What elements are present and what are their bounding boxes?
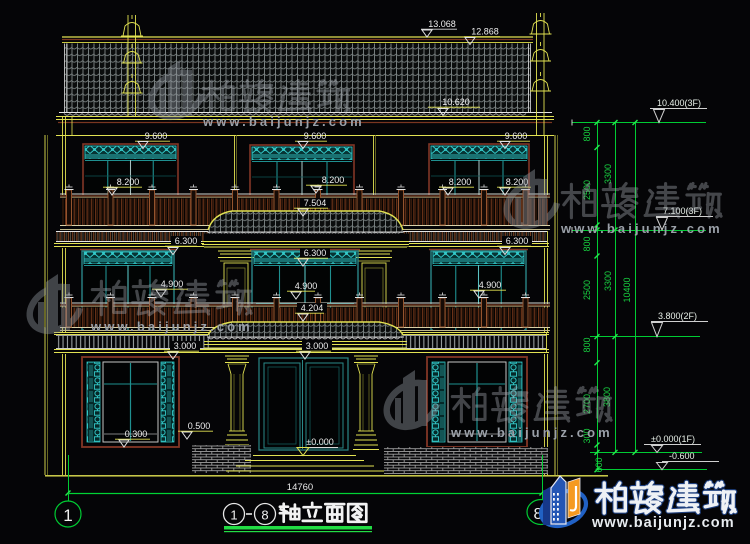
svg-text:600: 600 — [594, 457, 604, 472]
svg-text:8.200: 8.200 — [117, 177, 140, 187]
svg-text:800: 800 — [582, 236, 592, 251]
svg-text:2500: 2500 — [582, 280, 592, 300]
svg-text:www.baijunjz.com: www.baijunjz.com — [591, 515, 735, 531]
svg-text:9.600: 9.600 — [304, 131, 327, 141]
svg-text:10400: 10400 — [622, 277, 632, 302]
svg-text:9.600: 9.600 — [145, 131, 168, 141]
svg-text:1: 1 — [230, 508, 237, 523]
svg-text:4.900: 4.900 — [479, 280, 502, 290]
svg-text:800: 800 — [582, 126, 592, 141]
svg-text:3300: 3300 — [603, 164, 613, 184]
svg-text:1: 1 — [63, 506, 72, 525]
svg-text:8.200: 8.200 — [449, 177, 472, 187]
svg-text:3.000: 3.000 — [306, 341, 329, 351]
svg-text:0.500: 0.500 — [188, 421, 211, 431]
svg-text:0.300: 0.300 — [125, 429, 148, 439]
svg-text:6.300: 6.300 — [506, 236, 529, 246]
svg-text:www.baijunjz.com: www.baijunjz.com — [450, 425, 613, 440]
svg-text:8.200: 8.200 — [322, 175, 345, 185]
svg-text:7.504: 7.504 — [304, 198, 327, 208]
svg-text:6.300: 6.300 — [175, 236, 198, 246]
svg-text:6.300: 6.300 — [304, 248, 327, 258]
svg-text:10.620: 10.620 — [442, 97, 470, 107]
svg-text:3.000: 3.000 — [174, 341, 197, 351]
svg-text:3300: 3300 — [603, 271, 613, 291]
svg-text:4.204: 4.204 — [301, 303, 324, 313]
svg-text:9.600: 9.600 — [505, 131, 528, 141]
svg-text:8: 8 — [261, 508, 268, 523]
svg-text:www.baijunjz.com: www.baijunjz.com — [560, 221, 723, 236]
svg-text:4.900: 4.900 — [295, 281, 318, 291]
svg-text:10.400(3F): 10.400(3F) — [657, 98, 701, 108]
svg-text:-0.600: -0.600 — [669, 451, 695, 461]
svg-text:±0.000(1F): ±0.000(1F) — [651, 434, 695, 444]
svg-text:14760: 14760 — [287, 482, 313, 493]
svg-text:12.868: 12.868 — [471, 27, 499, 37]
svg-text:www.baijunjz.com: www.baijunjz.com — [202, 114, 365, 129]
svg-text:www.baijunjz.com: www.baijunjz.com — [90, 319, 253, 334]
svg-text:800: 800 — [582, 337, 592, 352]
svg-text:13.068: 13.068 — [428, 19, 456, 29]
svg-text:±0.000: ±0.000 — [306, 437, 333, 447]
svg-text:3.800(2F): 3.800(2F) — [658, 311, 697, 321]
